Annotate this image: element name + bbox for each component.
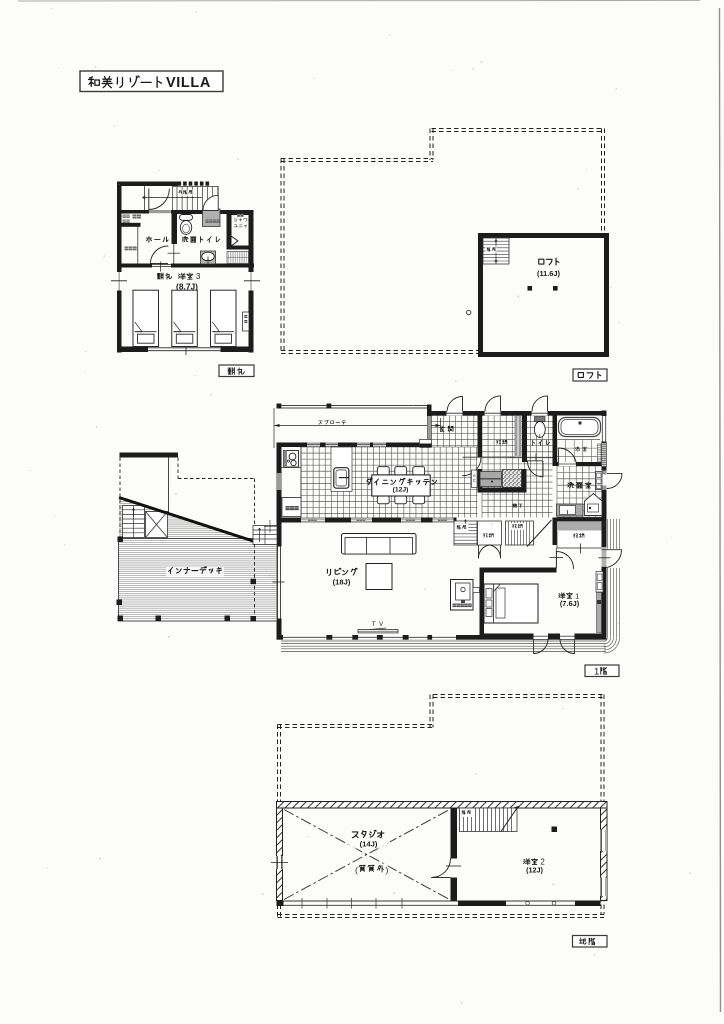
svg-text:VILLA: VILLA — [166, 75, 211, 91]
svg-text:(7.6J): (7.6J) — [560, 599, 580, 608]
svg-text:T V: T V — [372, 622, 384, 628]
svg-text:3: 3 — [196, 272, 201, 281]
svg-text:(14J): (14J) — [360, 840, 378, 849]
svg-text:(: ( — [355, 865, 358, 875]
svg-text:(12J): (12J) — [393, 487, 409, 494]
svg-text:(11.6J): (11.6J) — [537, 269, 561, 278]
svg-text:1: 1 — [594, 666, 599, 677]
svg-text:(12J): (12J) — [526, 866, 543, 875]
svg-text:C: C — [473, 478, 476, 483]
svg-text:): ) — [386, 865, 389, 875]
svg-text:(18J): (18J) — [333, 577, 351, 586]
